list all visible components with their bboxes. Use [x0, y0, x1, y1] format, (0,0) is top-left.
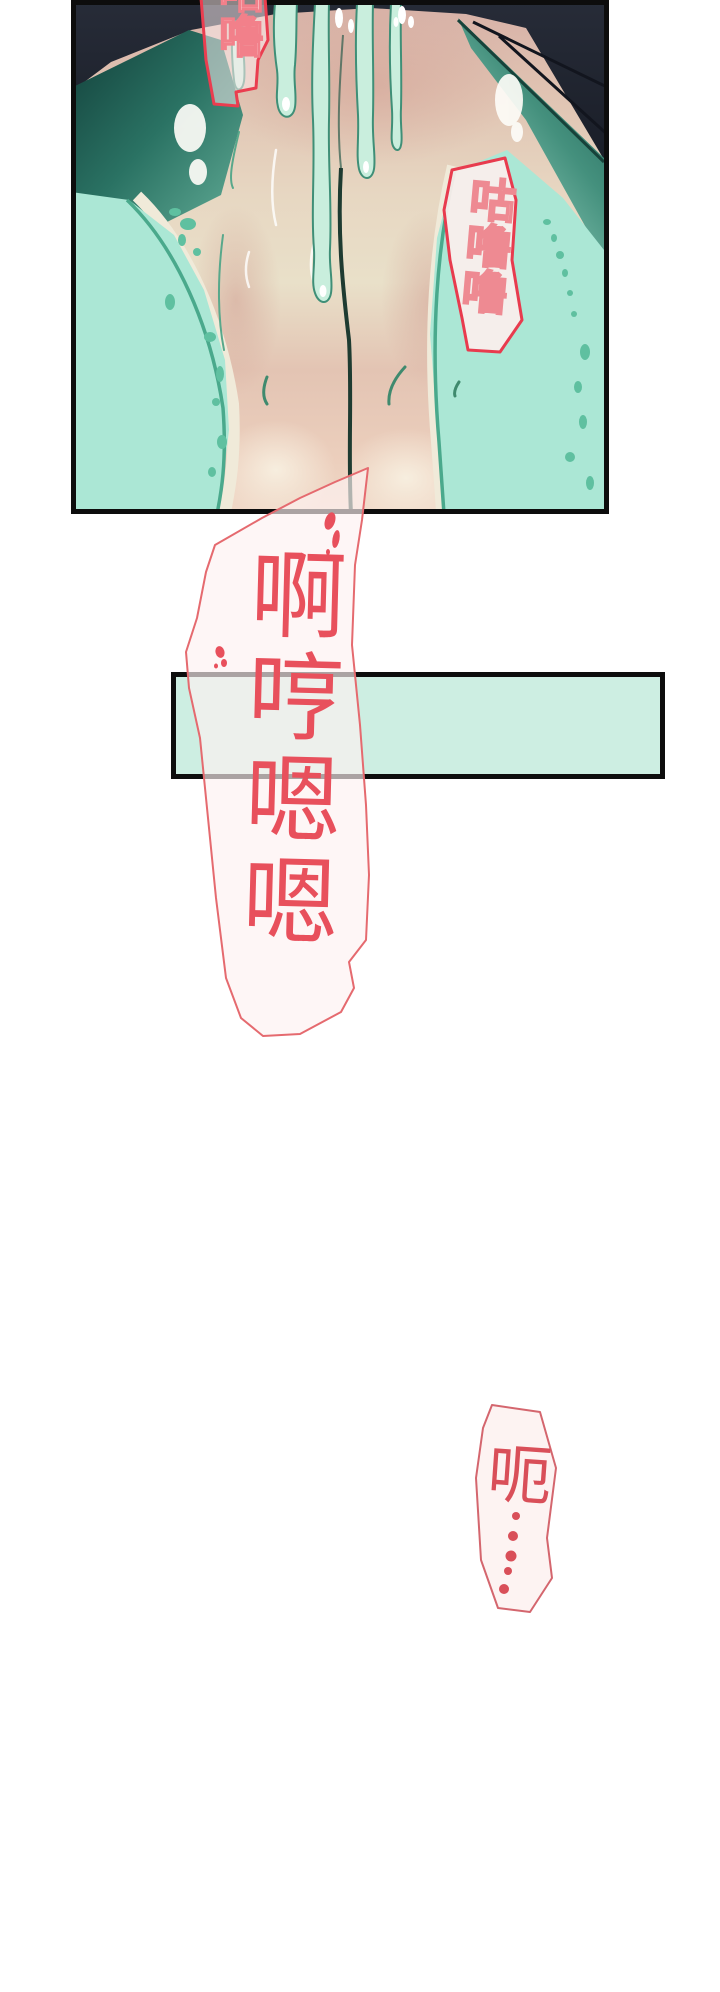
small-speech-bubble: 呃: [465, 1395, 565, 1625]
sfx-text-gululu: 咕噜噜: [451, 174, 520, 316]
small-bubble-shape: [476, 1405, 556, 1612]
comic-page: 咕噜 咕噜噜 啊哼嗯嗯 呃: [0, 0, 720, 1992]
main-speech-bubble: 啊哼嗯嗯: [175, 415, 390, 1055]
sfx-text-gulu: 咕噜: [210, 0, 264, 58]
main-bubble-text: 啊哼嗯嗯: [222, 544, 351, 955]
small-bubble-text: 呃: [477, 1439, 551, 1508]
